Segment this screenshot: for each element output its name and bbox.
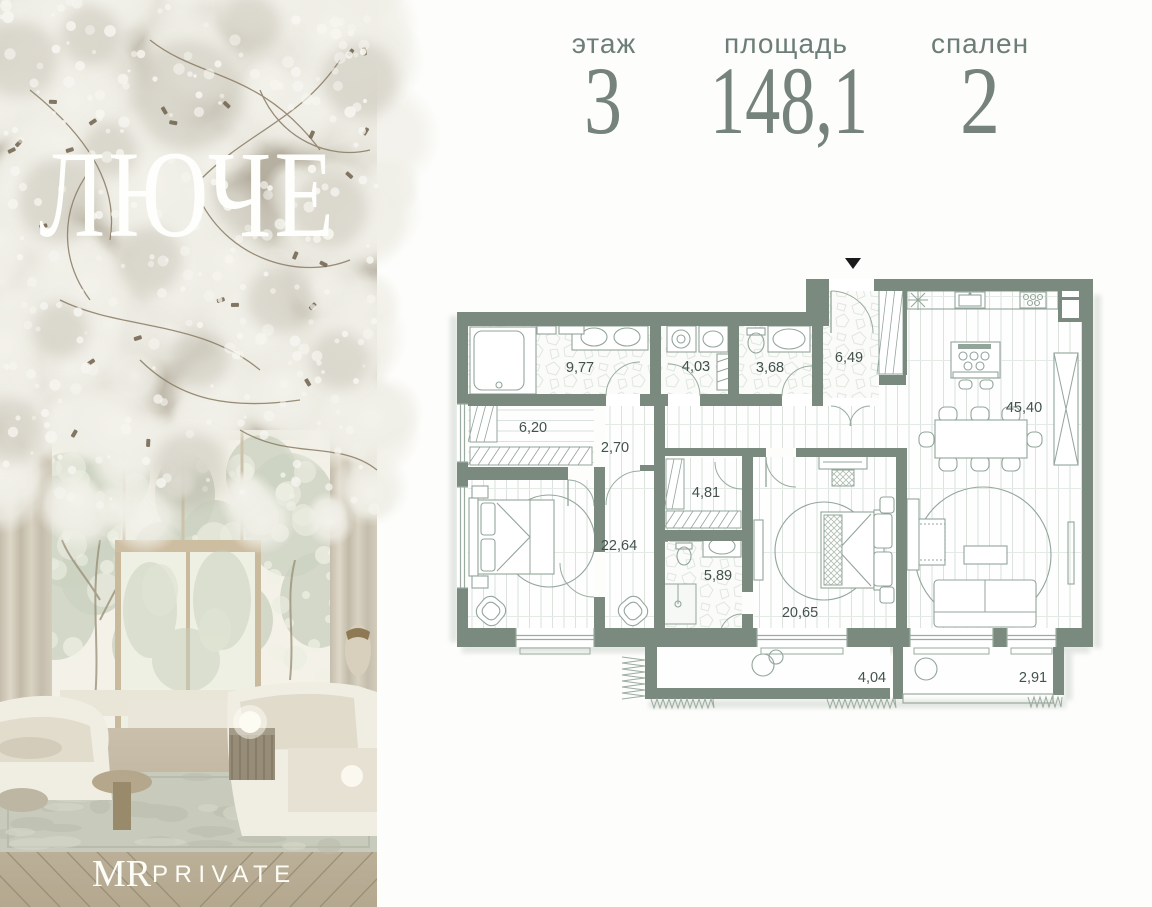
svg-text:MR: MR xyxy=(92,853,152,895)
svg-text:4,03: 4,03 xyxy=(682,359,710,375)
svg-text:3,68: 3,68 xyxy=(756,360,784,376)
svg-text:5,89: 5,89 xyxy=(704,568,732,584)
svg-text:9,77: 9,77 xyxy=(566,360,594,376)
svg-text:4,81: 4,81 xyxy=(692,485,720,501)
svg-text:148,1: 148,1 xyxy=(710,47,868,154)
svg-text:20,65: 20,65 xyxy=(782,605,818,621)
svg-text:2: 2 xyxy=(960,47,1000,154)
svg-text:6,49: 6,49 xyxy=(835,350,863,366)
svg-text:22,64: 22,64 xyxy=(601,538,637,554)
svg-text:2,70: 2,70 xyxy=(601,440,629,456)
svg-text:2,91: 2,91 xyxy=(1019,670,1047,686)
svg-text:45,40: 45,40 xyxy=(1006,400,1042,416)
svg-text:3: 3 xyxy=(584,47,622,154)
svg-text:4,04: 4,04 xyxy=(858,670,886,686)
svg-text:PRIVATE: PRIVATE xyxy=(152,861,297,888)
svg-text:6,20: 6,20 xyxy=(519,420,547,436)
svg-text:ЛЮЧЕ: ЛЮЧЕ xyxy=(39,126,337,263)
